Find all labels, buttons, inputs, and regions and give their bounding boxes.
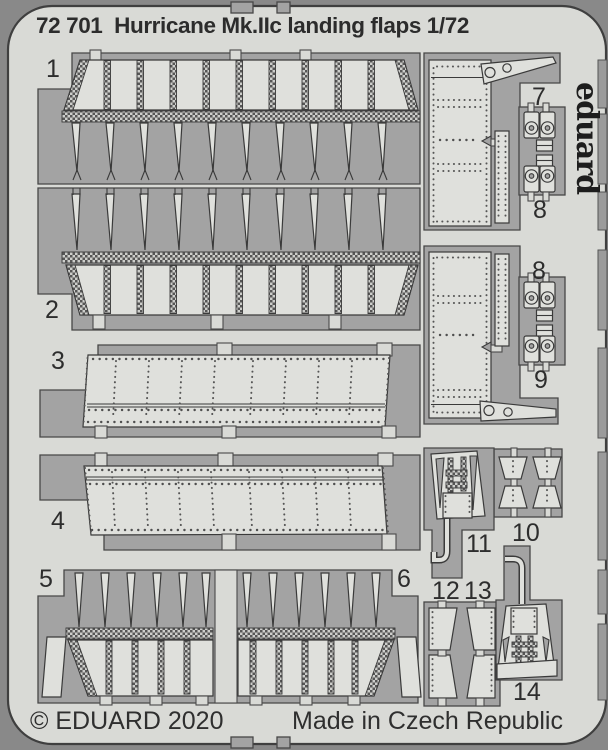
part-label-7: 7 xyxy=(532,85,546,110)
part-label-1: 1 xyxy=(46,57,60,82)
made-in-text: Made in Czech Republic xyxy=(292,707,563,736)
part-label-3: 3 xyxy=(51,349,65,374)
eduard-logo: eduard xyxy=(569,82,604,194)
part-label-11: 11 xyxy=(466,532,492,557)
center-divider xyxy=(215,570,237,703)
part-label-10: 10 xyxy=(512,521,540,546)
part-label-14: 14 xyxy=(513,680,541,705)
pe-fret-scan: 72 701 Hurricane Mk.IIc landing flaps 1/… xyxy=(0,0,608,750)
part-label-6: 6 xyxy=(397,567,411,592)
part-label-12: 12 xyxy=(432,579,460,604)
part-label-13: 13 xyxy=(464,579,492,604)
part-label-4: 4 xyxy=(51,509,65,534)
part-label-2: 2 xyxy=(45,298,59,323)
copyright-text: © EDUARD 2020 xyxy=(30,707,224,736)
part-label-5: 5 xyxy=(39,567,53,592)
sheet-title: 72 701 Hurricane Mk.IIc landing flaps 1/… xyxy=(36,13,596,39)
part-label-8: 8 xyxy=(533,198,547,223)
part-label-9: 9 xyxy=(534,368,548,393)
pe-fret-artwork xyxy=(0,0,608,750)
part-label-8: 8 xyxy=(532,259,546,284)
part-3-shape xyxy=(83,343,396,438)
